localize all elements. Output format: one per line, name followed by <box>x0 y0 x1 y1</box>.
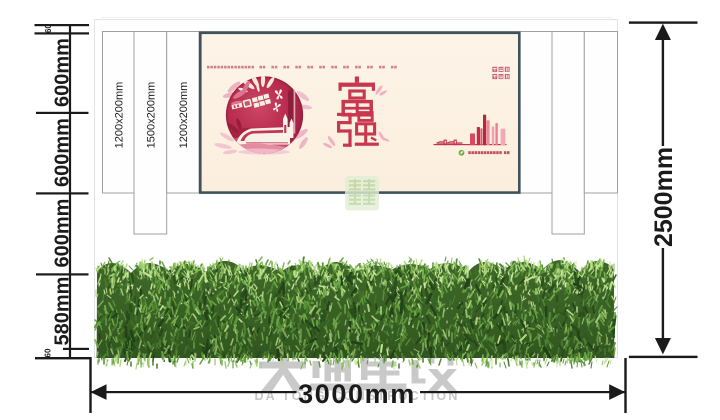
svg-text:600mm: 600mm <box>52 118 74 187</box>
svg-text:600mm: 600mm <box>52 199 74 268</box>
svg-text:1500x200mm: 1500x200mm <box>146 82 158 149</box>
svg-text:1200x200mm: 1200x200mm <box>178 82 190 149</box>
svg-text:2500mm: 2500mm <box>650 147 678 247</box>
svg-text:1200x200mm: 1200x200mm <box>114 82 126 149</box>
svg-text:600mm: 600mm <box>52 38 74 107</box>
svg-text:60: 60 <box>44 348 53 357</box>
svg-text:580mm: 580mm <box>52 277 74 346</box>
svg-text:3000mm: 3000mm <box>298 379 416 409</box>
svg-text:60: 60 <box>44 24 53 33</box>
